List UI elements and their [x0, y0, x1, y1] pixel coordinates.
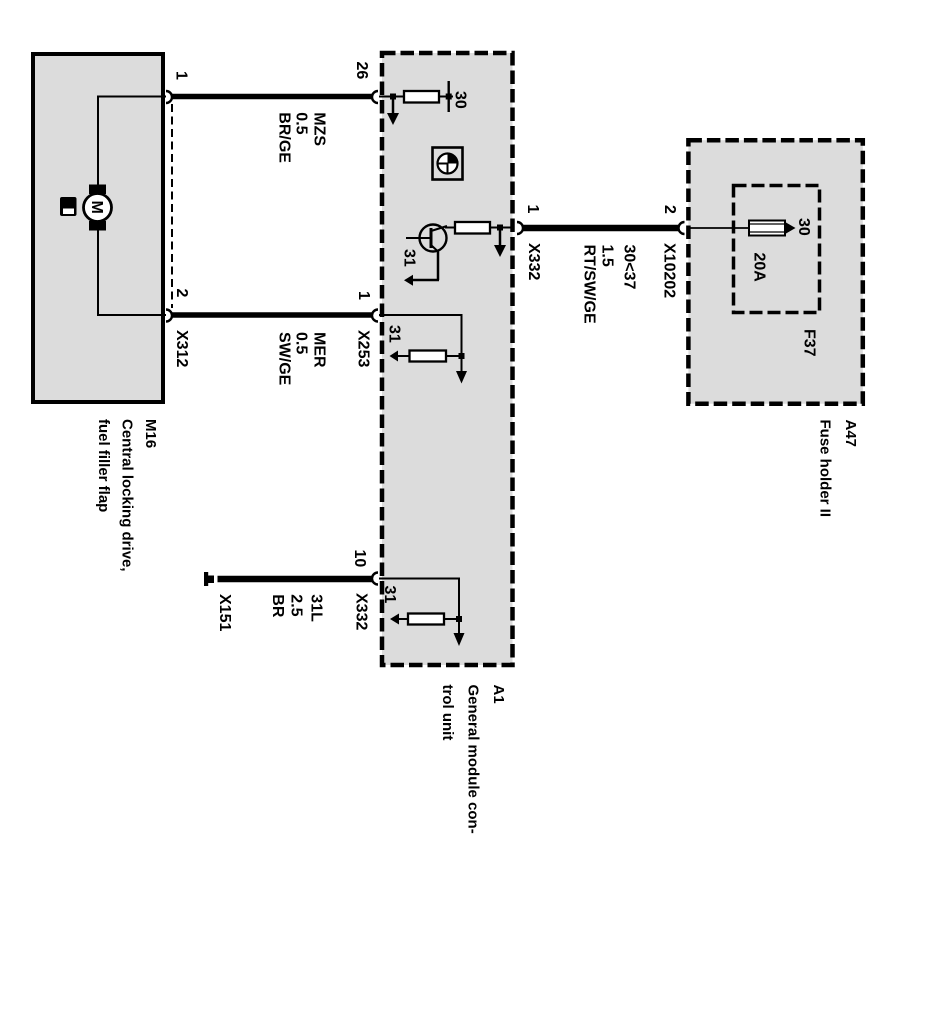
svg-text:M16: M16	[142, 419, 159, 448]
svg-text:General module con-: General module con-	[465, 685, 482, 834]
svg-text:trol unit: trol unit	[439, 685, 456, 741]
svg-text:MER: MER	[311, 332, 328, 368]
svg-text:RT/SW/GE: RT/SW/GE	[581, 245, 598, 324]
svg-text:X332: X332	[353, 593, 370, 630]
svg-text:F37: F37	[801, 329, 818, 357]
svg-text:Central locking drive,: Central locking drive,	[119, 419, 136, 572]
svg-text:2: 2	[173, 289, 190, 298]
svg-text:0.5: 0.5	[293, 112, 310, 134]
svg-text:30<37: 30<37	[621, 245, 638, 290]
svg-text:A47: A47	[842, 420, 859, 448]
svg-text:X332: X332	[525, 243, 542, 280]
svg-text:X151: X151	[216, 594, 233, 631]
svg-text:fuel filler flap: fuel filler flap	[95, 419, 112, 512]
svg-text:A1: A1	[490, 685, 507, 704]
svg-text:26: 26	[353, 62, 370, 80]
svg-text:1: 1	[524, 205, 541, 214]
svg-text:10: 10	[351, 550, 368, 568]
svg-text:M: M	[88, 201, 105, 214]
svg-text:BR: BR	[269, 594, 286, 618]
svg-text:X312: X312	[173, 330, 190, 367]
svg-text:31: 31	[401, 249, 418, 267]
svg-text:31: 31	[381, 586, 398, 604]
svg-text:31: 31	[386, 325, 403, 343]
svg-text:BR/GE: BR/GE	[276, 112, 293, 163]
svg-text:1: 1	[173, 71, 190, 80]
svg-text:X10202: X10202	[661, 243, 678, 298]
svg-text:20A: 20A	[751, 253, 768, 283]
svg-text:0.5: 0.5	[293, 332, 310, 354]
svg-text:MZS: MZS	[311, 112, 328, 146]
svg-text:SW/GE: SW/GE	[276, 332, 293, 386]
svg-text:2: 2	[661, 205, 678, 214]
svg-text:30: 30	[452, 91, 469, 109]
svg-text:1: 1	[355, 291, 372, 300]
svg-text:Fuse holder II: Fuse holder II	[817, 420, 834, 518]
svg-text:31L: 31L	[308, 594, 325, 622]
svg-text:X253: X253	[355, 330, 372, 367]
svg-text:30: 30	[795, 218, 812, 236]
svg-text:1.5: 1.5	[599, 245, 616, 267]
svg-text:2.5: 2.5	[288, 594, 305, 616]
